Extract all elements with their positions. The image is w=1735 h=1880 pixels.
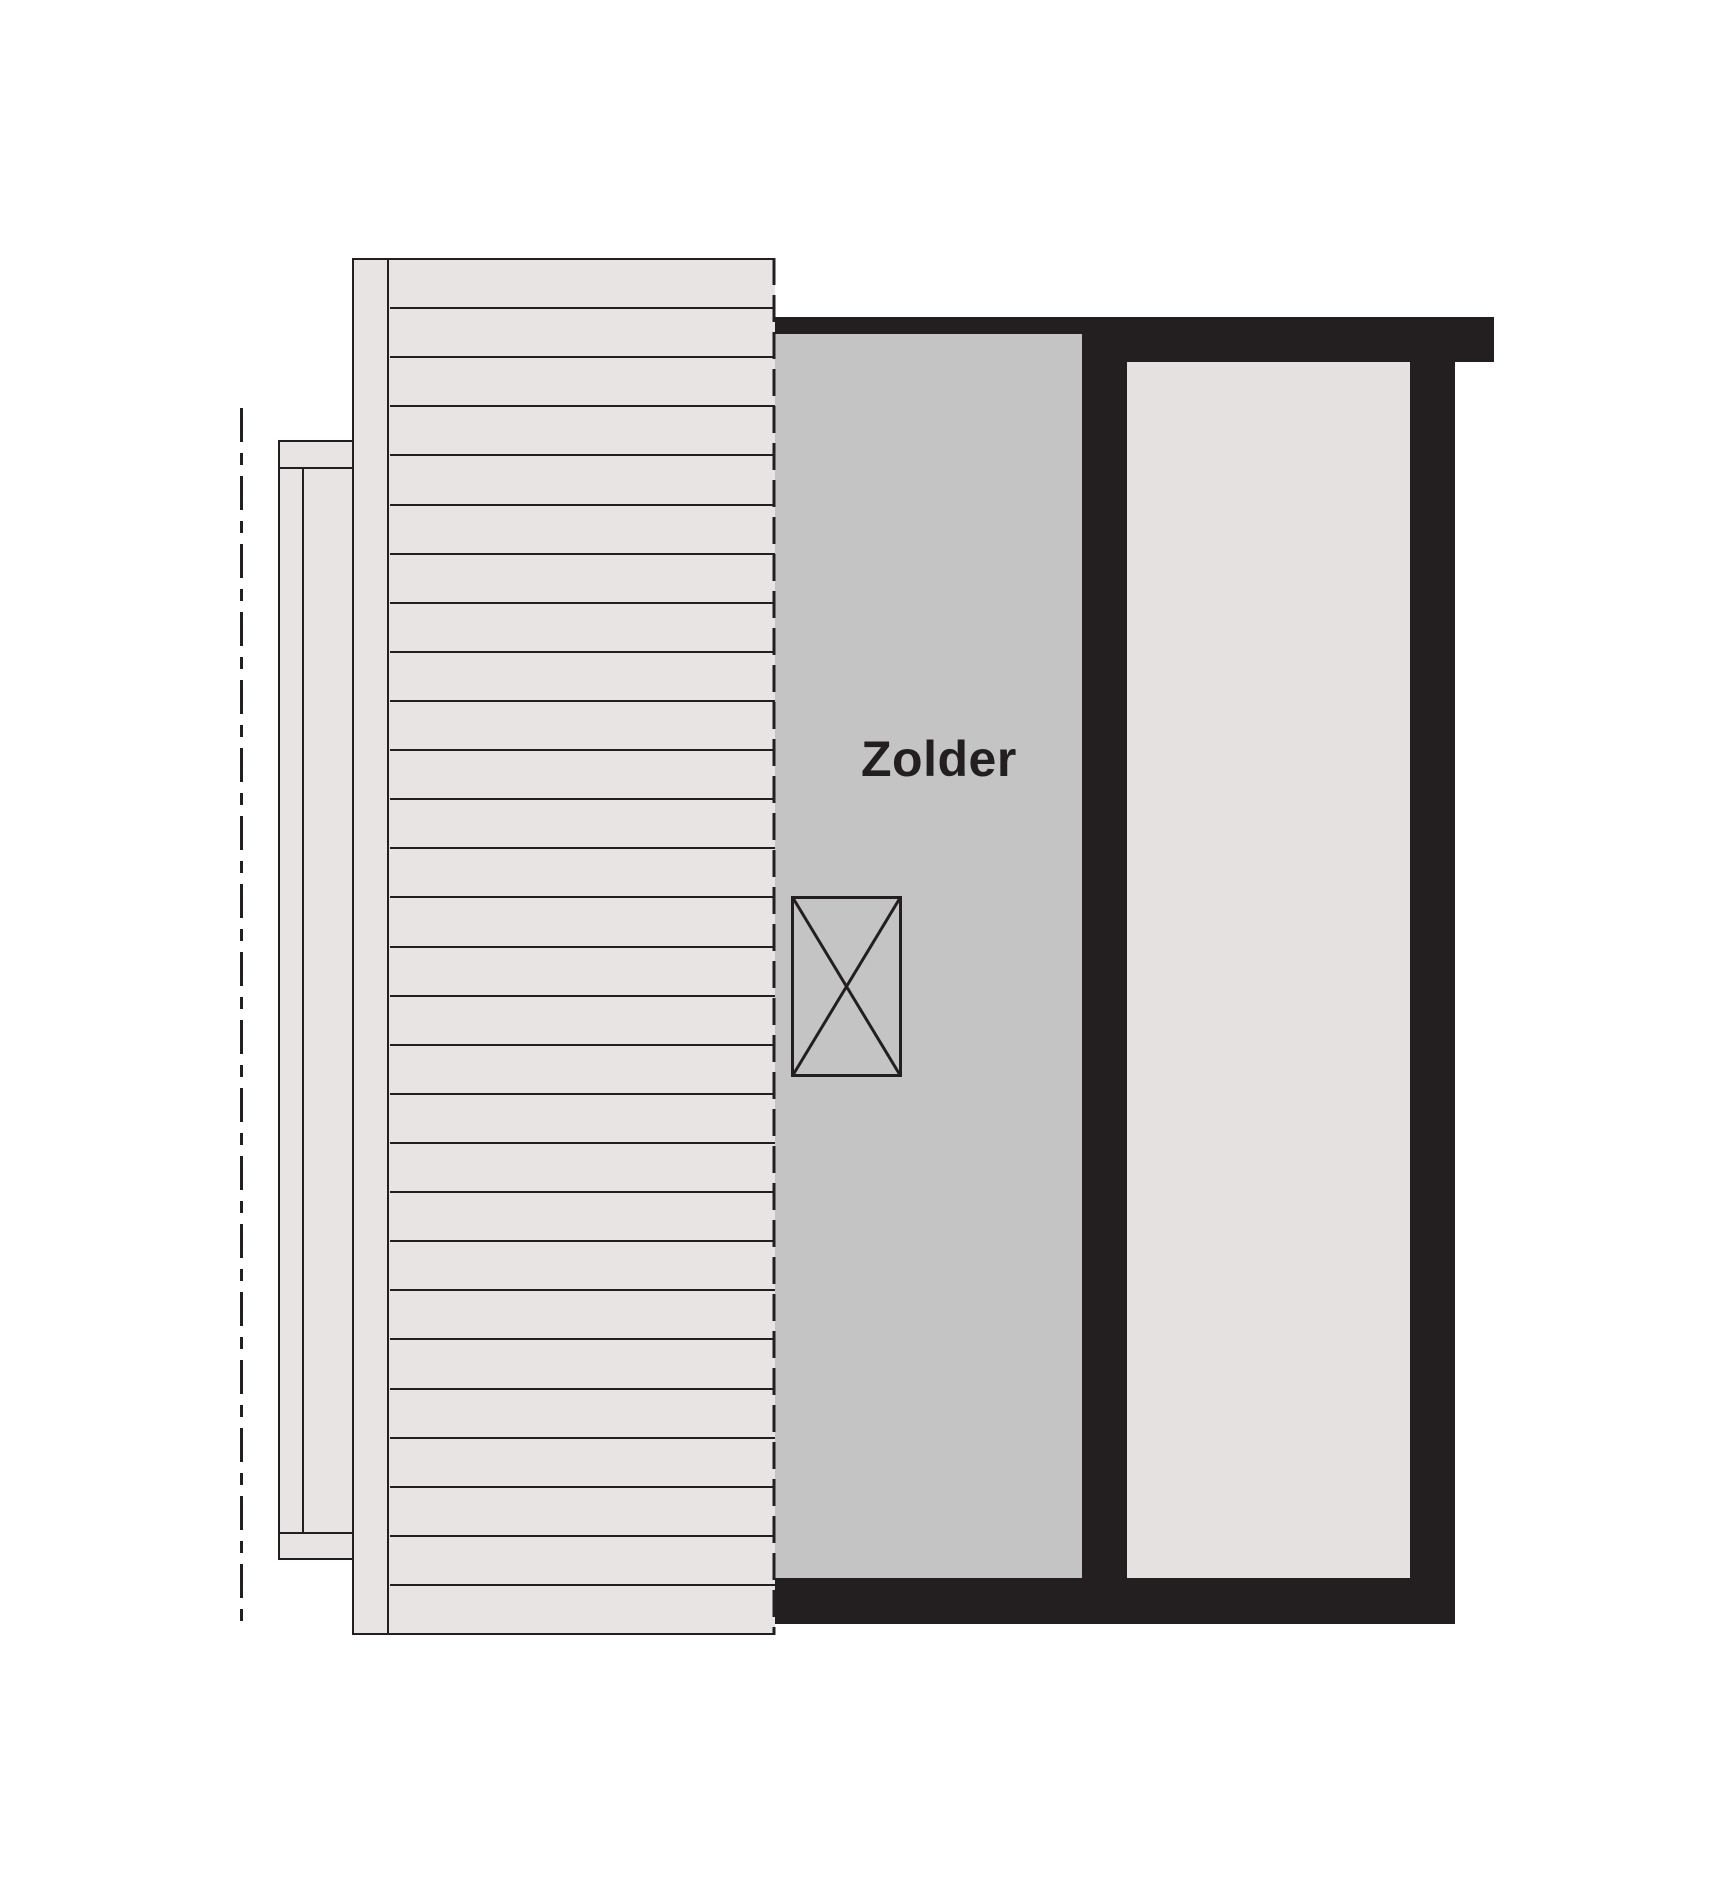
- roof-plank: [390, 307, 776, 356]
- roof-plank: [390, 798, 776, 847]
- roof-plank: [390, 1535, 776, 1584]
- side-panel-divider: [302, 467, 305, 1532]
- roof-plank: [390, 651, 776, 700]
- roof-plank: [390, 749, 776, 798]
- roof-plank: [390, 847, 776, 896]
- roof-dashed-edge: [771, 258, 777, 1635]
- room-zolder-label: Zolder: [861, 734, 1017, 784]
- roof-planks: [390, 260, 776, 1633]
- shaft-box: [791, 896, 902, 1077]
- wall-middle: [1082, 317, 1127, 1624]
- floorplan-canvas: Zolder: [0, 0, 1735, 1880]
- roof-plank: [390, 1240, 776, 1289]
- roof-plank: [390, 356, 776, 405]
- roof-plank: [390, 1338, 776, 1387]
- roof-plank: [390, 995, 776, 1044]
- roof-plank: [390, 1142, 776, 1191]
- roof-plank: [390, 896, 776, 945]
- roof-plank: [390, 1289, 776, 1338]
- roof-edge-band: [354, 260, 389, 1633]
- roof-plank: [390, 1093, 776, 1142]
- roof-plank: [390, 1191, 776, 1240]
- roof-plank: [390, 504, 776, 553]
- roof-structure: [352, 258, 775, 1635]
- wall-right: [1410, 317, 1455, 1624]
- roof-plank: [390, 405, 776, 454]
- roof-plank: [390, 700, 776, 749]
- roof-plank: [390, 260, 776, 307]
- roof-plank: [390, 454, 776, 503]
- roof-plank: [390, 1584, 776, 1633]
- centerline-dashdot: [239, 408, 244, 1629]
- wall-bottom: [775, 1578, 1455, 1624]
- roof-plank: [390, 553, 776, 602]
- roof-plank: [390, 946, 776, 995]
- roof-plank: [390, 1388, 776, 1437]
- roof-plank: [390, 1437, 776, 1486]
- roof-plank: [390, 602, 776, 651]
- side-panel-top-cap: [280, 467, 355, 470]
- roof-plank: [390, 1486, 776, 1535]
- side-panel: [278, 440, 355, 1560]
- room-secondary: [1127, 362, 1410, 1578]
- side-panel-bottom-cap: [280, 1532, 355, 1535]
- roof-plank: [390, 1044, 776, 1093]
